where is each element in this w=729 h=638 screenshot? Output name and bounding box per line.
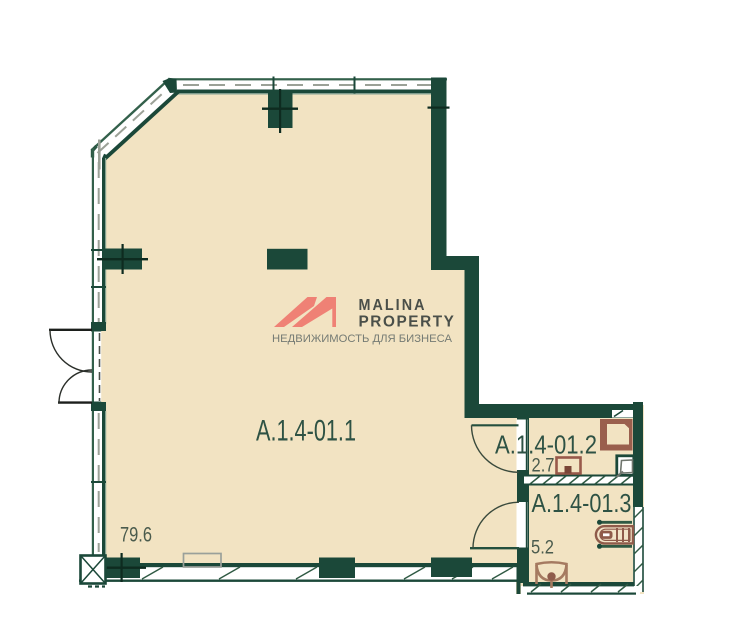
- svg-text:2.7: 2.7: [532, 456, 555, 477]
- svg-text:79.6: 79.6: [120, 524, 152, 547]
- svg-text:НЕДВИЖИМОСТЬ ДЛЯ БИЗНЕСА: НЕДВИЖИМОСТЬ ДЛЯ БИЗНЕСА: [272, 333, 453, 345]
- svg-text:5.2: 5.2: [531, 538, 554, 559]
- svg-text:A.1.4-01.1: A.1.4-01.1: [256, 415, 356, 448]
- svg-text:PROPERTY: PROPERTY: [359, 314, 456, 331]
- svg-text:MALINA: MALINA: [359, 297, 427, 314]
- svg-text:A.1.4-01.3: A.1.4-01.3: [532, 488, 632, 518]
